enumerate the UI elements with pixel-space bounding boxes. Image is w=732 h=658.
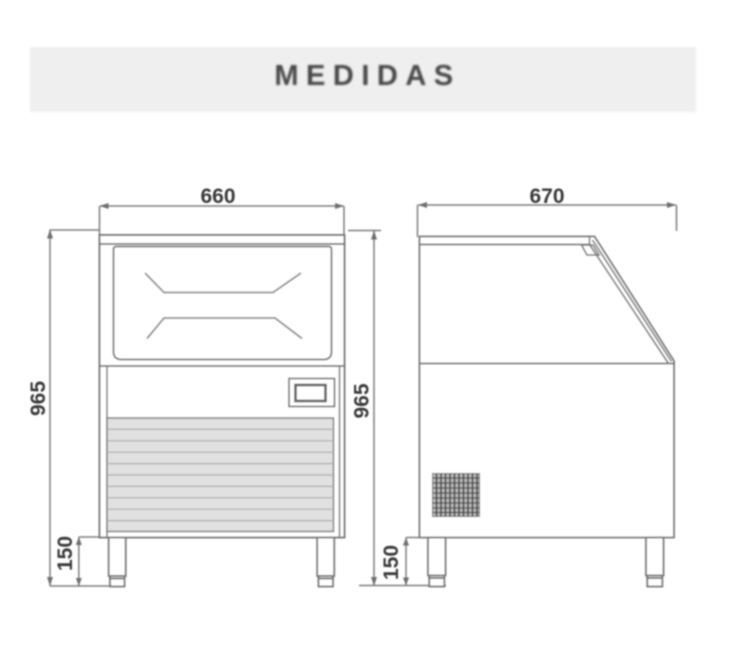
svg-text:670: 670 [529,185,564,208]
svg-text:965: 965 [351,383,374,418]
svg-text:660: 660 [200,185,235,208]
svg-text:150: 150 [380,545,403,580]
svg-text:965: 965 [27,381,50,416]
svg-text:150: 150 [54,536,77,571]
